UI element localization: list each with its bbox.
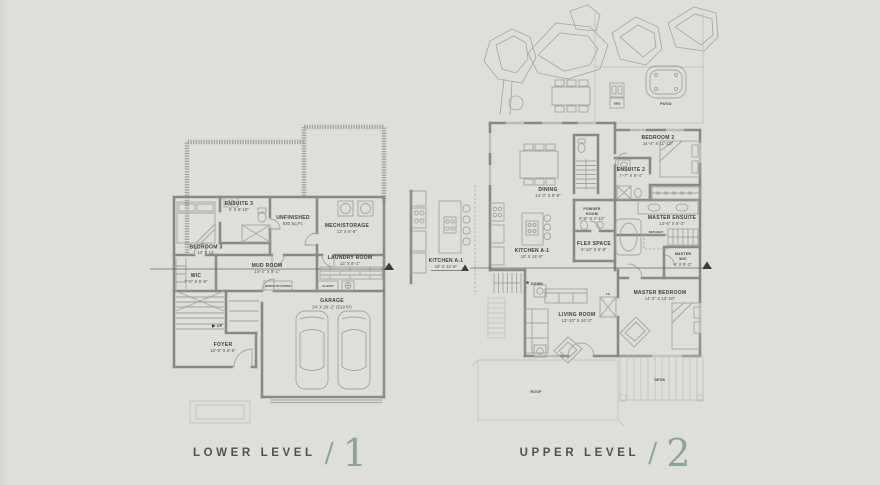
room-dims-foyer: 10'-9" X 6'-9" [210, 348, 236, 353]
bench-label: BENCH W/ HOOKS [265, 284, 291, 288]
ottoman-icon [554, 337, 582, 363]
room-dims-wic: 7'-5" X 5'-8" [184, 279, 208, 284]
room-dims-bedroom2: 14'-4" X 11'-10" [643, 141, 674, 146]
room-label-powder-1: POWDER [583, 207, 600, 211]
room-dims-master-bedroom: 14'-2" X 13'-10" [645, 296, 676, 301]
room-dims-mud: 14'-4" X 8'-1" [254, 269, 280, 274]
wic-shelving [176, 258, 186, 289]
up-label: UP [217, 324, 223, 328]
lower-level-caption-slash: / [325, 440, 334, 467]
patio-slab [595, 13, 703, 123]
room-label-master-wic-2: WIC [679, 257, 687, 261]
down-label: DOWN [531, 282, 543, 286]
section-marker-icon [384, 263, 394, 271]
upper-level-plan: BBQ PATIO [470, 3, 720, 428]
room-label-master-wic-1: MASTER [675, 252, 692, 256]
down-marker-icon [527, 282, 529, 284]
section-marker-icon [461, 265, 469, 272]
room-dims-garage: 24' X 20'-2" (519 ft²) [312, 305, 352, 310]
armchair-icon [620, 317, 650, 347]
kitchen-appliances [412, 191, 426, 273]
room-dims-ensuite3: 5' X 8'-10" [229, 207, 250, 212]
room-dims-kitchen: 10' X 14'-8" [521, 254, 544, 259]
upper-level-caption-label: UPPER LEVEL [520, 447, 639, 459]
outdoor-table-icon [552, 80, 590, 112]
closet-shelving [229, 301, 259, 321]
room-dims-powder: 6'-9" X 4'-10" [579, 216, 605, 221]
dining-table-icon [520, 144, 558, 185]
room-dims-master-wic: 6' X 9'-3" [674, 262, 692, 267]
kitchen-island [439, 201, 470, 253]
stairs-down [494, 273, 521, 293]
lower-level-plan: UP [66, 105, 406, 435]
tree-icon [668, 7, 718, 51]
lower-level-caption-number: 1 [343, 434, 367, 472]
room-dims-flex: 6'-10" X 5'-8" [581, 247, 607, 252]
stairs-center [576, 159, 596, 190]
garage-car-icon [338, 311, 370, 389]
roof-label: ROOF [530, 390, 542, 394]
room-dims-unfinished: 530 Sq.Ft. [283, 221, 303, 226]
hot-tub-icon [646, 66, 686, 98]
detail-dims-kitchen: 10' X 14'-8" [435, 264, 458, 269]
bed-icon [660, 141, 700, 177]
room-dims-living: 13'-10" X 16'-2" [562, 318, 593, 323]
fireplace-icon [600, 297, 616, 317]
room-dims-master-ensuite: 13'-6" X 5'-3" [659, 221, 685, 226]
skylight-label: SKYLIGHT [649, 230, 664, 234]
mech-equipment [338, 201, 373, 216]
room-dims-mech: 12' X 6'-8" [337, 229, 358, 234]
kitchen-appliances [491, 203, 504, 265]
roof-area [472, 360, 624, 426]
ensuite2-fixtures [617, 160, 642, 199]
front-porch [190, 401, 250, 423]
up-arrow-icon [212, 324, 215, 328]
room-dims-bedroom3: 12' X 12' [197, 250, 214, 255]
tree-icon [484, 29, 536, 115]
room-label-garage: GARAGE [320, 298, 344, 304]
closet-label: CLOSET [322, 284, 334, 288]
fireplace-label: FP [606, 292, 610, 296]
tree-icon [570, 5, 600, 31]
room-dims-ensuite2: 7'-7" X 8'-4" [619, 173, 643, 178]
foundation-walls [187, 127, 384, 253]
garage-door [270, 400, 382, 403]
walls [490, 123, 700, 356]
deck-label: DECK [655, 378, 666, 382]
bed-icon [177, 202, 215, 243]
wardrobe [652, 187, 700, 199]
upper-level-caption: UPPER LEVEL / 2 [475, 429, 735, 477]
floorplan-sheet: UP [0, 0, 880, 485]
windows [490, 123, 700, 356]
wc-fixtures [578, 139, 585, 153]
exterior-steps [488, 298, 505, 338]
upper-level-drawing: BBQ PATIO [470, 3, 720, 428]
patio-label: PATIO [660, 102, 671, 106]
lower-level-caption-label: LOWER LEVEL [193, 447, 316, 459]
lower-level-caption: LOWER LEVEL / 1 [150, 429, 410, 477]
lower-level-drawing: UP [66, 105, 406, 435]
bbq-label: BBQ [614, 102, 620, 106]
room-dims-laundry: 12' X 8'-1" [340, 261, 361, 266]
tree-icon [612, 17, 662, 65]
bed-icon [672, 303, 700, 349]
garage-car-icon [296, 311, 328, 389]
upper-level-caption-number: 2 [666, 434, 690, 472]
room-dims-dining: 14'-3" X 8'-8" [535, 193, 561, 198]
kitchen-island [522, 213, 551, 245]
section-marker-icon [702, 262, 712, 270]
upper-level-caption-slash: / [648, 440, 657, 467]
